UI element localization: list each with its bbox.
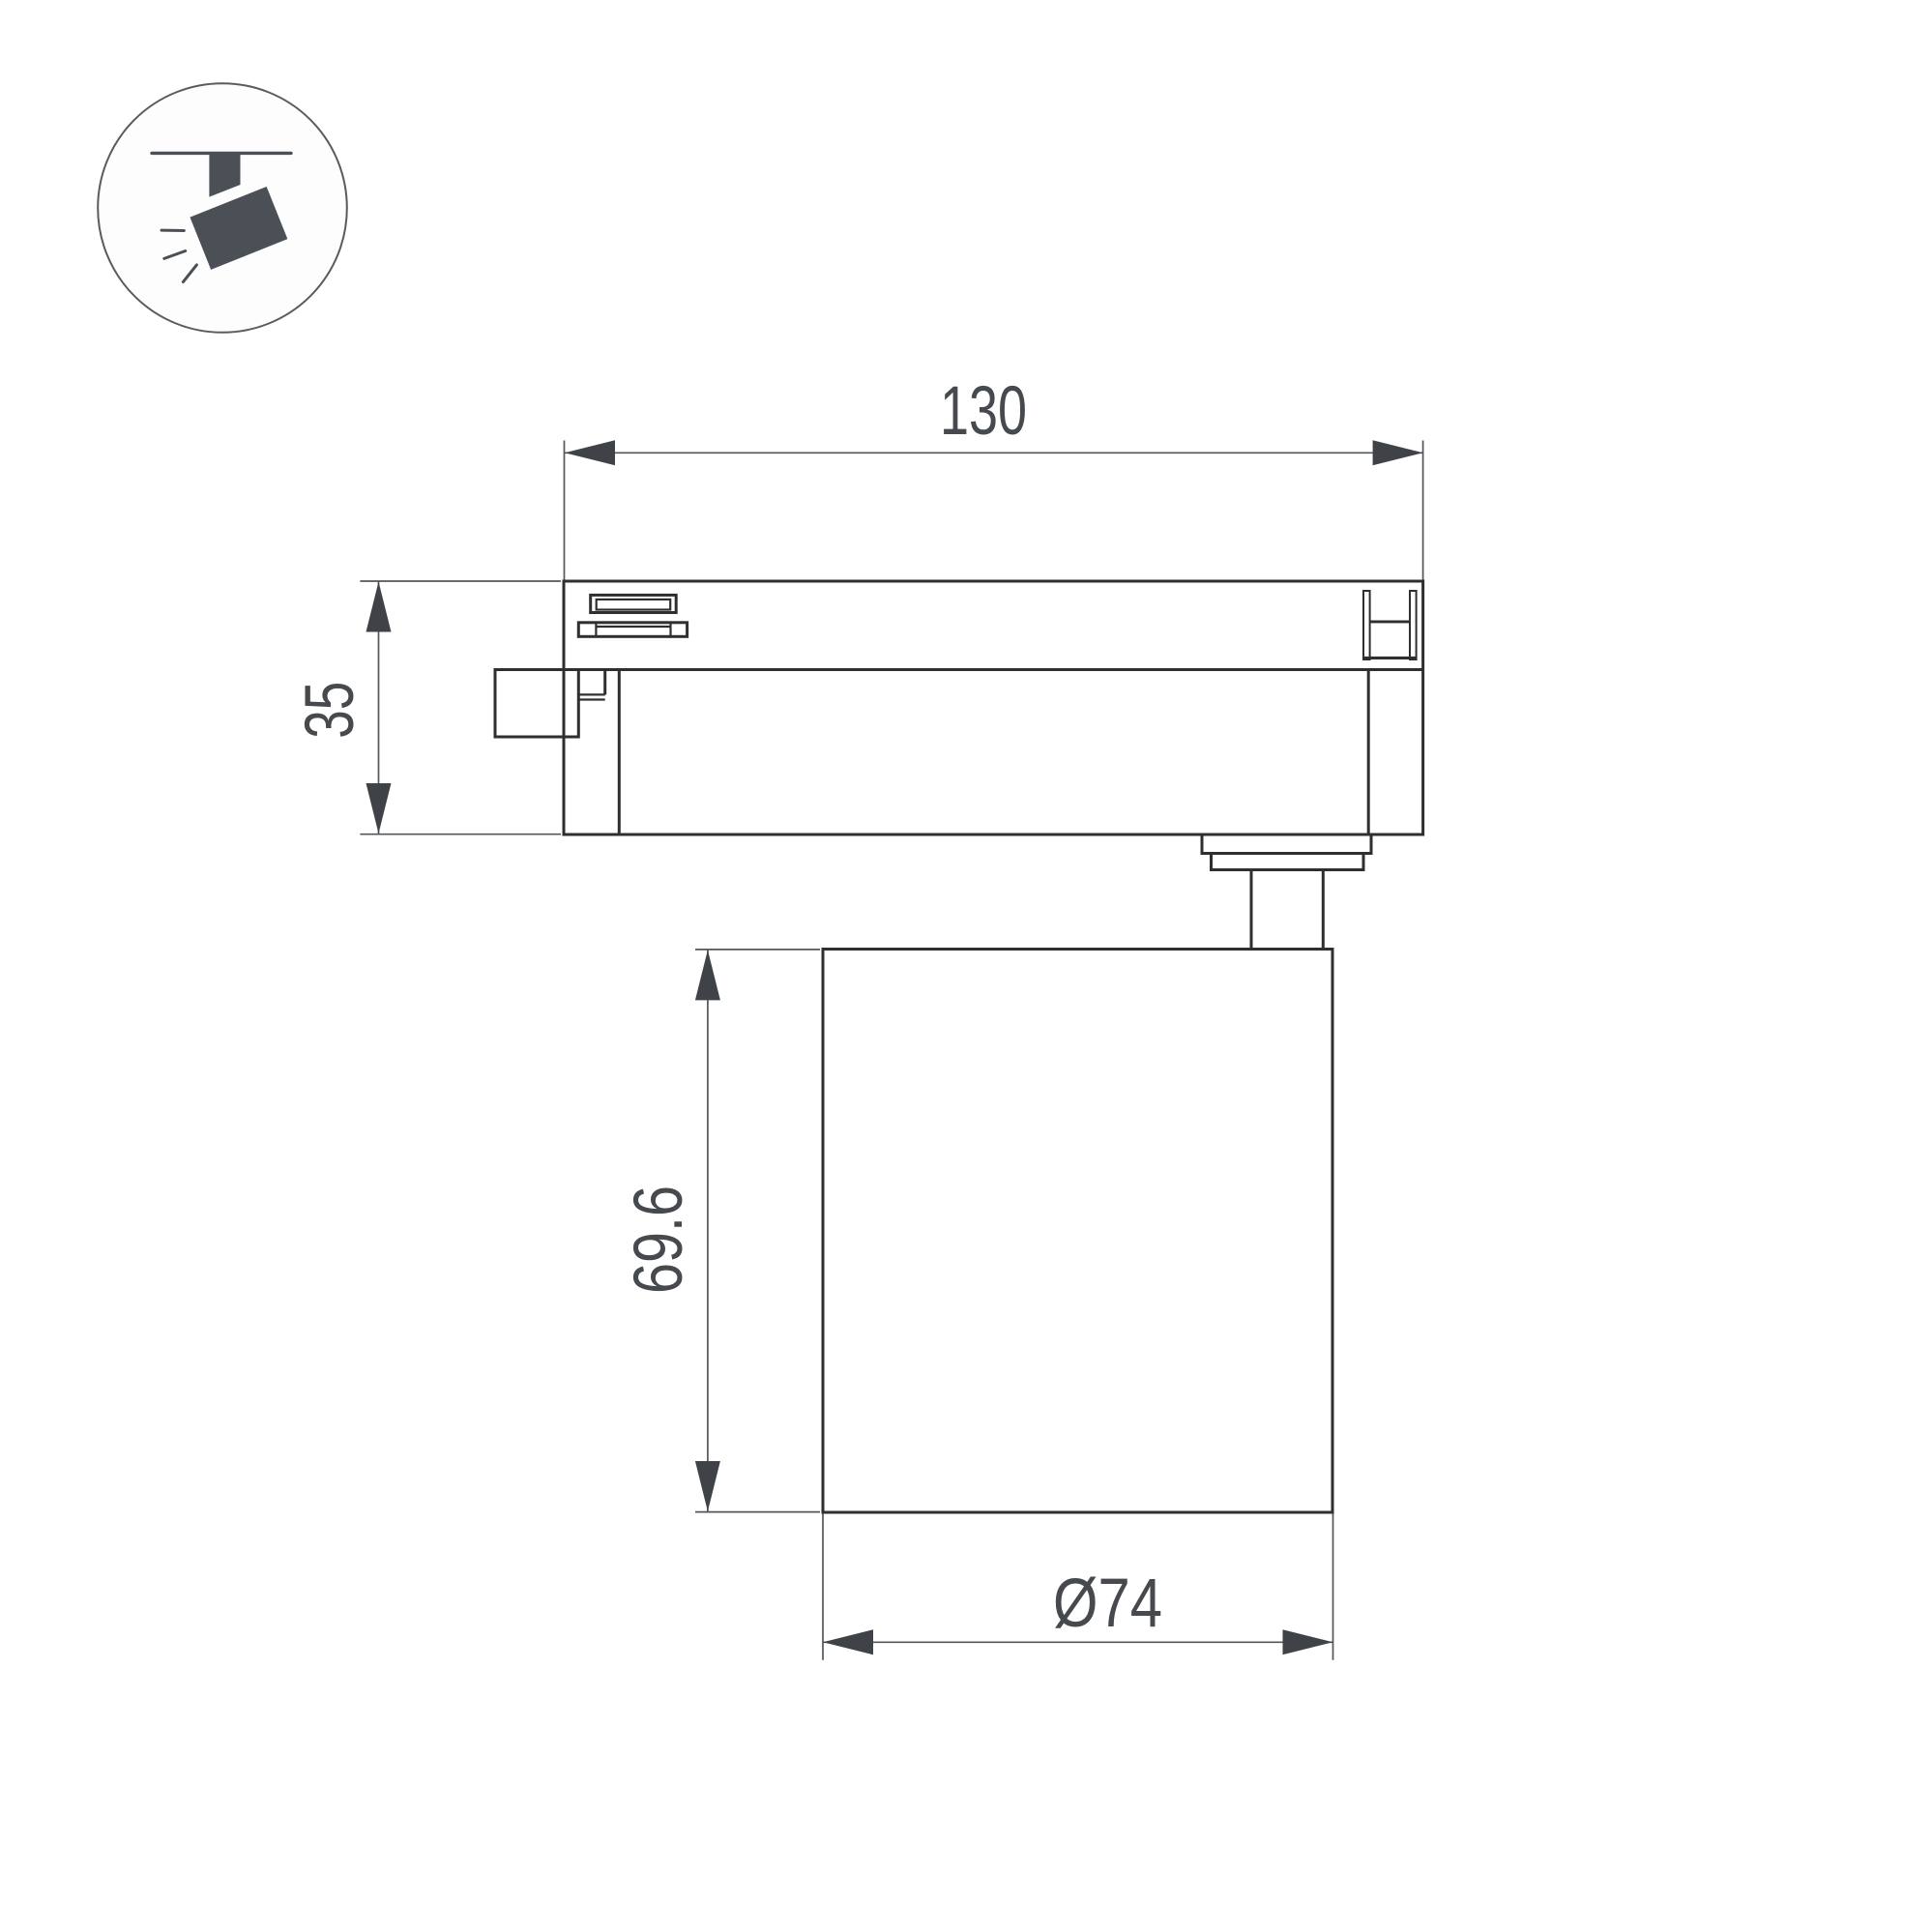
svg-text:69.6: 69.6 bbox=[621, 1186, 697, 1294]
svg-text:Ø74: Ø74 bbox=[1053, 1566, 1162, 1642]
svg-text:130: 130 bbox=[940, 373, 1027, 450]
svg-text:35: 35 bbox=[292, 682, 368, 739]
